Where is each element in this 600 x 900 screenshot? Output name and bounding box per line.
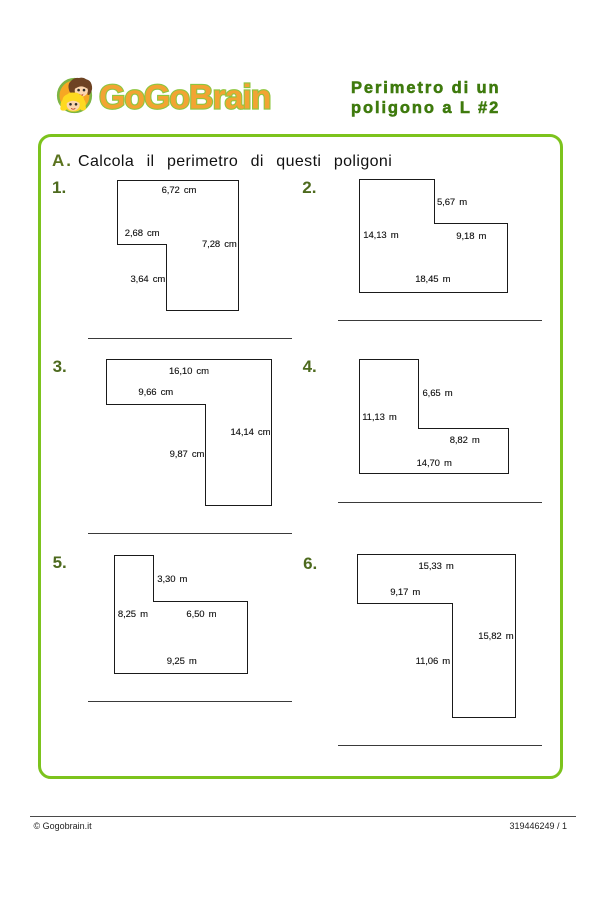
svg-text:GoGoBrain: GoGoBrain: [99, 79, 270, 117]
